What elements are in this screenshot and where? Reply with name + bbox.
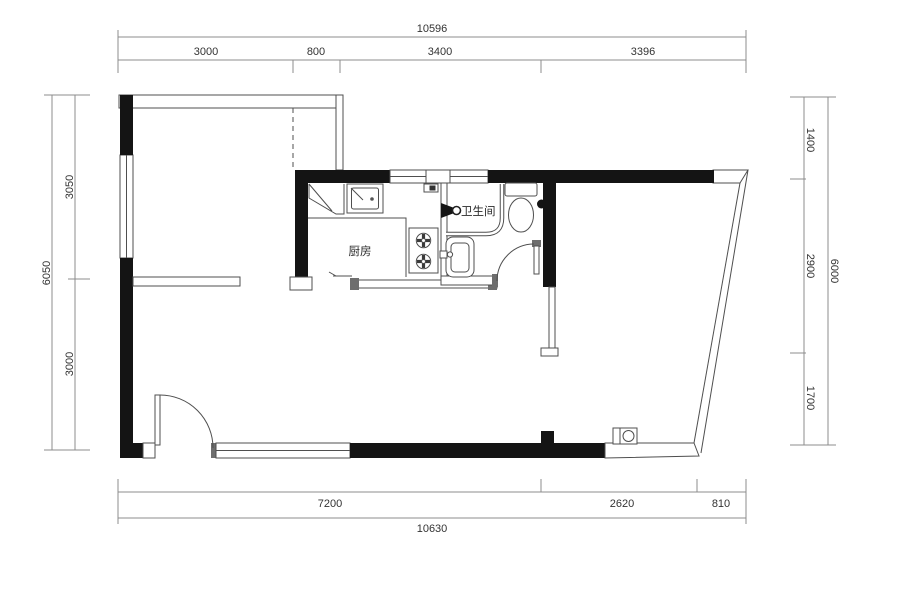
- dim-right-overall: 6000: [828, 259, 840, 283]
- kitchen-label: 厨房: [349, 245, 372, 258]
- bathroom-right-wall: [543, 183, 556, 287]
- bottom-wall-black: [350, 443, 605, 458]
- living-partial-wall: [133, 277, 240, 286]
- dim-top-segment-2: 3400: [428, 46, 452, 58]
- shower-head-icon: [441, 203, 461, 218]
- range-hood-icon: [424, 184, 438, 192]
- kitchen-corner-cabinet: [309, 184, 344, 214]
- dim-right-segment-1: 2900: [804, 254, 816, 278]
- dim-right-segment-2: 1700: [804, 386, 816, 410]
- dimension-right: 1400 2900 1700 6000: [790, 97, 840, 445]
- dim-top-segment-0: 3000: [194, 46, 218, 58]
- washing-machine-icon: [613, 428, 637, 444]
- floor-plan: 10596 3000 800 3400 3396 7200 2620 810 1…: [0, 0, 900, 600]
- partial-wall-foot: [541, 348, 558, 356]
- gas-stove-icon: [409, 228, 438, 273]
- dim-left-overall: 6050: [41, 261, 53, 285]
- kitchen-top-wall: [295, 170, 390, 183]
- dim-top-segment-3: 3396: [631, 46, 655, 58]
- bottom-wall-hollow: [605, 443, 699, 458]
- dim-right-segment-0: 1400: [804, 128, 816, 152]
- top-right-hollow: [713, 170, 748, 183]
- outer-walls: [119, 95, 748, 458]
- dimension-top: 10596 3000 800 3400 3396: [118, 23, 746, 73]
- dim-bottom-segment-2: 810: [712, 498, 730, 510]
- slanted-wall-outer: [701, 170, 748, 453]
- partial-wall-below-bath: [549, 287, 555, 348]
- bathroom: 卫生间: [440, 183, 558, 356]
- dimension-bottom: 7200 2620 810 10630: [118, 479, 746, 535]
- dim-bottom-overall: 10630: [417, 523, 448, 535]
- dimension-left: 6050 3050 3000: [41, 95, 90, 450]
- wall-gap-panel: [426, 170, 450, 183]
- dim-left-segment-1: 3000: [64, 352, 76, 376]
- kitchen-left-wall: [295, 183, 308, 278]
- kitchen-wall-base: [290, 277, 312, 290]
- corner-pier: [133, 443, 143, 458]
- entry-door-leaf: [155, 395, 160, 445]
- bottom-wall-pier: [541, 431, 554, 443]
- balcony-right-wall: [336, 95, 343, 170]
- right-room: [613, 428, 637, 444]
- entry-left-jamb: [143, 443, 155, 458]
- entry-right-jamb: [211, 443, 216, 458]
- dim-bottom-segment-1: 2620: [610, 498, 634, 510]
- left-wall-upper: [120, 95, 133, 155]
- entry-door: [155, 395, 213, 448]
- dim-top-overall: 10596: [417, 23, 448, 35]
- top-wall-hollow: [119, 95, 343, 108]
- left-wall-lower: [120, 258, 133, 458]
- bathroom-door: [497, 240, 541, 281]
- dim-top-segment-1: 800: [307, 46, 325, 58]
- slanted-wall-inner: [694, 183, 740, 443]
- pipe-dot: [537, 200, 546, 209]
- top-wall-black-right: [488, 170, 714, 183]
- floor-plan-canvas: 10596 3000 800 3400 3396 7200 2620 810 1…: [0, 0, 900, 600]
- bathroom-label: 卫生间: [461, 204, 496, 218]
- dim-left-segment-0: 3050: [64, 175, 76, 199]
- dim-bottom-segment-0: 7200: [318, 498, 342, 510]
- kitchen-sink-icon: [347, 184, 383, 213]
- toilet-icon: [505, 183, 537, 232]
- entry-door-swing-arc: [160, 395, 213, 448]
